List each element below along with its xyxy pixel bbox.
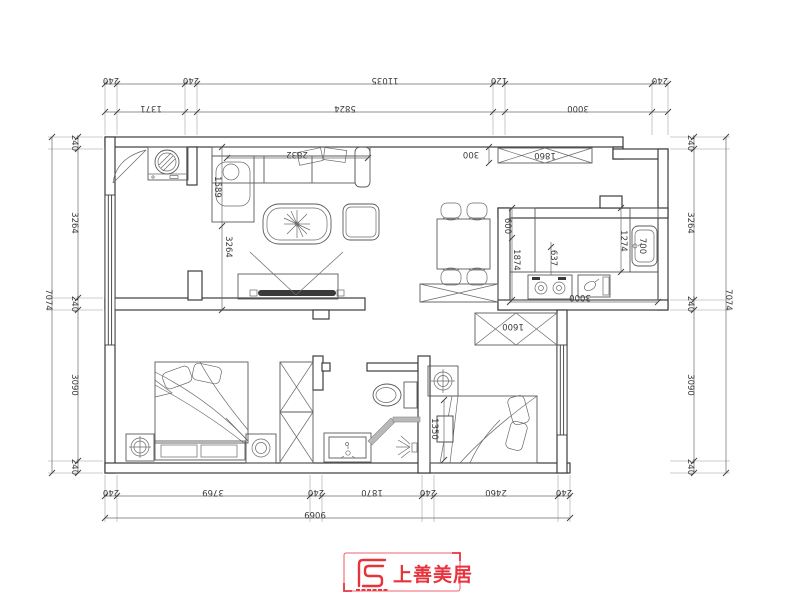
shower	[368, 417, 420, 458]
dining-set	[437, 203, 490, 285]
dim-label: 3000	[567, 103, 589, 113]
washing-machine	[148, 147, 188, 180]
dim-label: 3000	[569, 292, 591, 302]
wall-top	[105, 137, 623, 147]
dim-label: 240	[685, 296, 695, 312]
shower-head-icon	[396, 436, 417, 458]
dim-label: 1274	[618, 230, 628, 252]
coffee-table	[263, 204, 331, 244]
dim-label: 1874	[511, 249, 521, 271]
toilet	[373, 382, 417, 408]
wall-middle	[105, 298, 365, 310]
tv-cabinet	[238, 252, 344, 299]
wall-hall-nib	[313, 310, 329, 319]
dim-label: 1860	[534, 150, 556, 160]
dim-label: 240	[685, 459, 695, 475]
dim-label: 700	[637, 238, 647, 254]
dim-label: 3090	[69, 374, 79, 396]
side-table	[343, 204, 379, 240]
logo: 上善美居	[344, 553, 473, 591]
dim-label: 3264	[223, 236, 233, 258]
dim-label: 240	[103, 487, 119, 497]
floor-plan-drawing: 240 240 11035 120 240 1371 5824 3000 240…	[0, 0, 800, 600]
balcony-door-swing	[113, 150, 146, 183]
dim-label: 9069	[304, 509, 326, 519]
logo-corner-bl	[344, 583, 352, 591]
vanity-sink	[324, 433, 371, 462]
dim-label: 300	[463, 149, 479, 159]
dim-label: 1870	[361, 487, 383, 497]
wall-pier	[188, 271, 202, 300]
dim-label: 120	[491, 75, 507, 85]
sideboard	[420, 284, 498, 302]
stove	[528, 275, 572, 299]
window-bedroom2	[557, 345, 567, 435]
bed-master	[155, 362, 248, 443]
dim-label: 2460	[485, 487, 507, 497]
dim-label: 5824	[334, 103, 356, 113]
wall-wardrobe-stub	[313, 356, 323, 390]
bedroom2-stool	[428, 366, 458, 396]
dim-label: 1371	[140, 103, 162, 113]
dim-label: 3264	[69, 212, 79, 234]
dim-label: 3090	[685, 374, 695, 396]
bedroom1-stool	[126, 434, 154, 461]
faucet-icon	[341, 446, 355, 458]
dim-label: 240	[308, 487, 324, 497]
dim-label: 240	[69, 459, 79, 475]
wall-right-upper	[658, 149, 668, 310]
dim-label: 11035	[371, 75, 398, 85]
dim-label: 1589	[212, 176, 222, 198]
wall-kitchen-top	[498, 208, 668, 218]
wall-duct	[600, 196, 622, 208]
dim-label: 637	[548, 250, 558, 266]
logo-brand-text: 上善美居	[393, 563, 473, 586]
dim-label: 7074	[43, 289, 53, 311]
wall-bath-nib	[322, 363, 330, 371]
dim-label: 240	[685, 135, 695, 151]
logo-corner-tr	[452, 553, 460, 561]
dim-label: 240	[183, 75, 199, 85]
plant-icon	[284, 210, 310, 238]
nightstand-master	[246, 434, 276, 463]
dim-label: 1600	[502, 321, 524, 331]
dresser	[155, 441, 245, 460]
dim-label: 240	[103, 75, 119, 85]
dim-label: 2832	[286, 149, 308, 159]
dim-label: 1350	[429, 418, 439, 440]
dim-label: 240	[556, 487, 572, 497]
floor-plan-canvas: 240 240 11035 120 240 1371 5824 3000 240…	[0, 0, 800, 600]
dim-label: 240	[69, 296, 79, 312]
logo-mark	[359, 560, 385, 586]
dim-label: 3769	[202, 487, 224, 497]
dim-label: 7074	[723, 289, 733, 311]
bed-second	[430, 394, 537, 463]
wall-balcony-stub	[187, 147, 197, 185]
logo-microtext	[356, 589, 388, 591]
dim-label: 240	[420, 487, 436, 497]
wall-bottom	[105, 463, 570, 473]
wall-bath-top	[367, 363, 418, 371]
wardrobe-master	[280, 362, 313, 463]
dim-label: 240	[69, 135, 79, 151]
dim-label: 600	[502, 218, 512, 234]
window-left	[105, 195, 115, 345]
dim-label: 3264	[685, 212, 695, 234]
dim-label: 240	[652, 75, 668, 85]
kitchen-counter	[510, 208, 658, 300]
